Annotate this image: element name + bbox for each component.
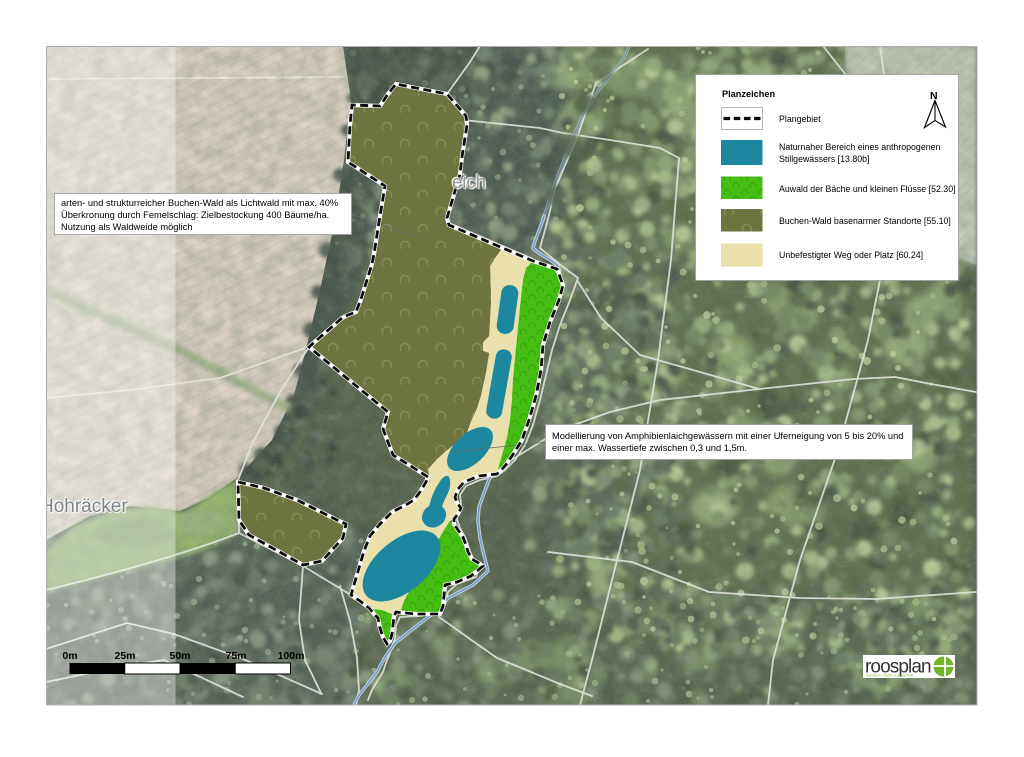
svg-text:Buchen-Wald basenarmer Standor: Buchen-Wald basenarmer Standorte [55.10] (779, 216, 951, 226)
svg-text:75m: 75m (225, 650, 246, 662)
svg-text:Unbefestigter Weg oder Platz [: Unbefestigter Weg oder Platz [60.24] (779, 250, 923, 260)
svg-text:Freiraum • Stadt • Landschaft: Freiraum • Stadt • Landschaft (866, 674, 913, 678)
svg-text:Modellierung von Amphibienlaic: Modellierung von Amphibienlaichgewässern… (552, 431, 903, 441)
svg-text:Planzeichen: Planzeichen (722, 89, 775, 99)
svg-text:Naturnaher Bereich eines anthr: Naturnaher Bereich eines anthropogenen (779, 142, 940, 152)
svg-text:50m: 50m (169, 650, 190, 662)
svg-text:Auwald der Bäche und kleinen F: Auwald der Bäche und kleinen Flüsse [52.… (779, 184, 956, 194)
svg-text:100m: 100m (278, 650, 305, 662)
svg-text:Hohräcker: Hohräcker (40, 496, 128, 517)
svg-text:einer max. Wassertiefe zwische: einer max. Wassertiefe zwischen 0,3 und … (552, 443, 747, 453)
svg-text:arten- und strukturreicher Buc: arten- und strukturreicher Buchen-Wald a… (61, 198, 338, 208)
svg-text:Überkronung durch Femelschlag:: Überkronung durch Femelschlag: Zielbesto… (61, 210, 329, 220)
svg-text:eich: eich (452, 171, 486, 192)
svg-text:0m: 0m (62, 650, 77, 662)
svg-text:Nutzung als Waldweide möglich: Nutzung als Waldweide möglich (61, 222, 192, 232)
svg-text:N: N (930, 90, 938, 102)
svg-text:Stillgewässers [13.80b]: Stillgewässers [13.80b] (779, 154, 869, 164)
svg-text:25m: 25m (114, 650, 135, 662)
svg-text:Plangebiet: Plangebiet (779, 114, 821, 124)
